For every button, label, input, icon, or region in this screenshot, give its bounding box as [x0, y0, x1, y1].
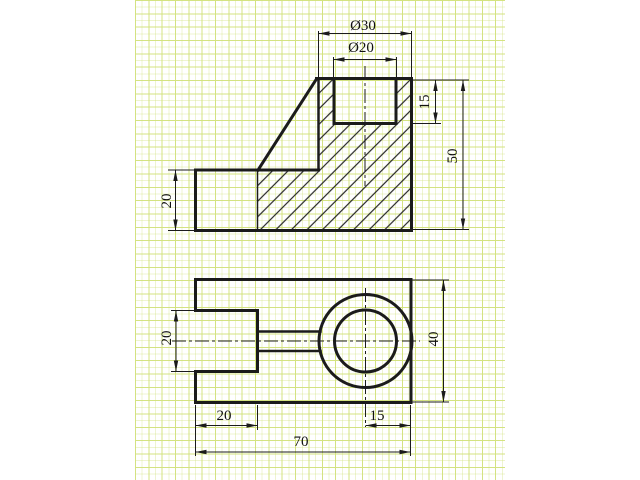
- top-view-dimensions: 20 40 20 15 70: [159, 280, 449, 456]
- arrowhead: [441, 280, 445, 291]
- arrowhead: [334, 57, 345, 61]
- arrowhead: [401, 31, 412, 35]
- arrowhead: [461, 219, 465, 230]
- arrowhead: [247, 423, 258, 427]
- dim-top-center-to-edge: 15: [370, 408, 385, 424]
- arrowhead: [441, 391, 445, 402]
- front-view: [196, 66, 412, 231]
- technical-drawing-canvas: Ø30 Ø20 15 50 2: [0, 0, 640, 480]
- dim-top-overall-width: 70: [294, 434, 309, 450]
- dim-front-hole-depth: 15: [417, 95, 433, 110]
- arrowhead: [400, 423, 411, 427]
- drawing-sheet: Ø30 Ø20 15 50 2: [0, 0, 640, 480]
- arrowhead: [174, 311, 178, 322]
- dim-front-outer-diameter: Ø30: [350, 18, 376, 34]
- dim-top-slot-width: 20: [159, 331, 175, 346]
- chamfer-slant-edge: [258, 79, 317, 170]
- arrowhead: [386, 57, 397, 61]
- arrowhead: [319, 31, 330, 35]
- arrowhead: [433, 80, 437, 91]
- arrowhead: [433, 113, 437, 124]
- arrowhead: [196, 423, 207, 427]
- dim-top-slot-length: 20: [217, 408, 232, 424]
- arrowhead: [174, 361, 178, 372]
- arrowhead: [173, 170, 177, 181]
- dim-front-inner-diameter: Ø20: [348, 40, 374, 56]
- dim-top-overall-depth: 40: [426, 332, 442, 347]
- arrowhead: [196, 450, 207, 454]
- arrowhead: [400, 450, 411, 454]
- dim-front-base-height: 20: [159, 194, 175, 209]
- top-view: [172, 280, 420, 428]
- arrowhead: [173, 220, 177, 231]
- arrowhead: [461, 80, 465, 91]
- dim-front-total-height: 50: [445, 149, 461, 164]
